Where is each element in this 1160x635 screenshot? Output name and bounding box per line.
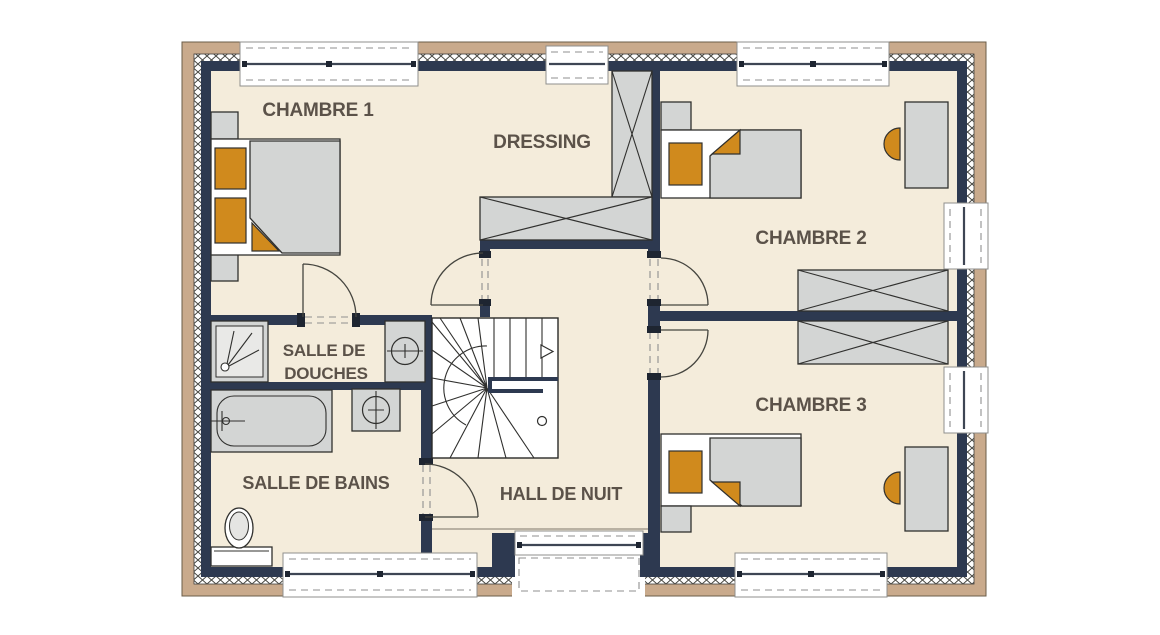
pillow [669, 143, 702, 185]
label-chambre2: CHAMBRE 2 [755, 228, 866, 249]
washbasin-icon [385, 321, 425, 382]
wardrobe-icon [480, 197, 652, 240]
nightstand [211, 112, 238, 139]
nightstand [661, 506, 691, 532]
label-dressing: DRESSING [493, 132, 591, 153]
label-hall: HALL DE NUIT [500, 484, 622, 504]
nightstand [211, 254, 238, 281]
window-icon [283, 553, 477, 597]
window-icon [735, 553, 887, 597]
desk [905, 102, 948, 188]
window-icon [240, 42, 418, 86]
bathtub-icon [211, 390, 332, 452]
washbasin-icon [352, 389, 400, 431]
wardrobe-icon [798, 321, 948, 364]
desk [905, 447, 948, 531]
shower-icon [211, 321, 268, 382]
label-douches-line1: SALLE DE [283, 341, 365, 360]
label-chambre1: CHAMBRE 1 [262, 100, 374, 121]
label-bains: SALLE DE BAINS [242, 473, 389, 493]
window-icon [515, 531, 643, 555]
nightstand [661, 102, 691, 130]
label-chambre3: CHAMBRE 3 [755, 395, 866, 416]
recess-outdoor [512, 549, 645, 635]
pillow [215, 198, 246, 243]
wardrobe-icon [612, 71, 652, 197]
stair-newel [538, 417, 547, 426]
window-icon [546, 46, 608, 84]
winder-staircase [432, 318, 558, 458]
label-douches-line2: DOUCHES [284, 364, 368, 383]
floor-plan-svg: CHAMBRE 1 DRESSING CHAMBRE 2 SALLE DE DO… [0, 0, 1160, 635]
pillow [669, 451, 702, 493]
pillow [215, 148, 246, 189]
window-icon [737, 42, 889, 86]
window-icon [944, 203, 988, 269]
floor-plan-page: CHAMBRE 1 DRESSING CHAMBRE 2 SALLE DE DO… [0, 0, 1160, 635]
window-icon [944, 367, 988, 433]
recess-wall-left [492, 533, 515, 577]
wardrobe-icon [798, 270, 948, 311]
